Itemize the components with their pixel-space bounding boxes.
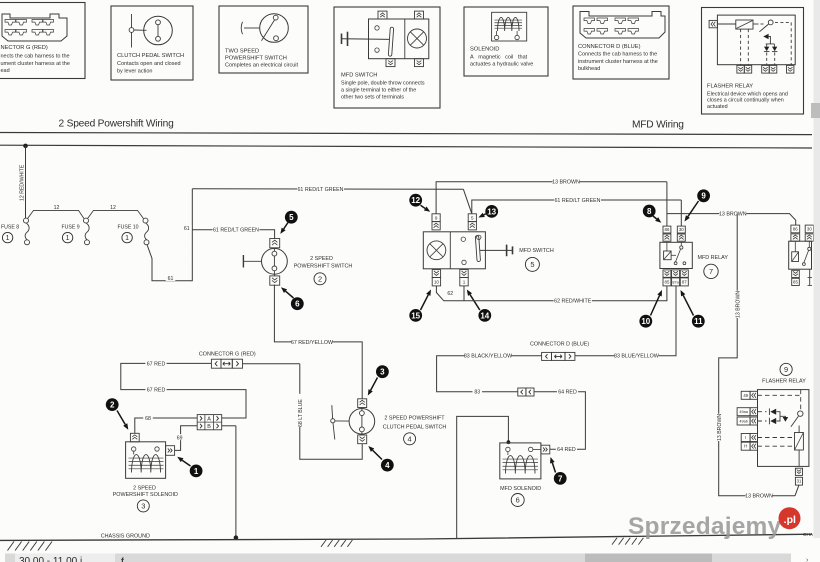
svg-text:instrument cluster harness at: instrument cluster harness at the — [578, 59, 658, 65]
svg-text:13 BROWN: 13 BROWN — [745, 494, 773, 500]
svg-text:CONNECTOR D (BLUE): CONNECTOR D (BLUE) — [530, 342, 589, 348]
svg-text:2: 2 — [110, 401, 115, 410]
svg-text:9: 9 — [701, 192, 706, 201]
svg-text:POWERSHIFT SWITCH: POWERSHIFT SWITCH — [225, 56, 287, 62]
svg-text:FLASHER RELAY: FLASHER RELAY — [707, 83, 753, 89]
svg-text:49: 49 — [743, 393, 748, 398]
svg-text:12 RED/WHITE: 12 RED/WHITE — [20, 164, 26, 201]
svg-text:SOLENOID: SOLENOID — [470, 46, 499, 52]
svg-text:1: 1 — [125, 235, 129, 242]
svg-text:POWERSHIFT SOLENOID: POWERSHIFT SOLENOID — [113, 492, 178, 498]
svg-text:1: 1 — [66, 235, 70, 242]
svg-text:49aa: 49aa — [739, 410, 748, 414]
svg-text:2 SPEED: 2 SPEED — [310, 256, 333, 262]
svg-text:13: 13 — [487, 207, 496, 216]
svg-text:87a: 87a — [672, 280, 679, 284]
svg-text:CHASSIS GROUND: CHASSIS GROUND — [101, 533, 150, 539]
svg-text:6: 6 — [295, 300, 300, 309]
svg-text:CONNECTOR D (BLUE): CONNECTOR D (BLUE) — [578, 44, 641, 50]
svg-text:83 BLUE/YELLOW: 83 BLUE/YELLOW — [614, 354, 659, 360]
svg-text:67 RED/YELLOW: 67 RED/YELLOW — [291, 340, 333, 346]
svg-text:49ab: 49ab — [739, 419, 747, 423]
svg-text:2 SPEED: 2 SPEED — [133, 485, 156, 491]
svg-text:Electrical device which opens: Electrical device which opens and — [707, 91, 788, 97]
svg-text:CLUTCH PEDAL SWITCH: CLUTCH PEDAL SWITCH — [117, 53, 184, 59]
svg-text:11: 11 — [694, 317, 703, 326]
svg-text:13 BROWN: 13 BROWN — [552, 180, 580, 186]
svg-text:A magnetic coil that: A magnetic coil that — [470, 54, 528, 60]
svg-text:64 RED: 64 RED — [558, 390, 577, 396]
svg-text:MFD RELAY: MFD RELAY — [697, 255, 728, 261]
svg-text:CONNECTOR G (RED): CONNECTOR G (RED) — [199, 351, 256, 357]
svg-text:9: 9 — [784, 365, 788, 374]
svg-text:61 RED/LT GREEN: 61 RED/LT GREEN — [297, 187, 343, 193]
svg-text:H: H — [744, 444, 747, 449]
svg-text:NECTOR G (RED): NECTOR G (RED) — [1, 45, 48, 51]
svg-text:Single pole, double throw conn: Single pole, double throw connects — [341, 81, 425, 87]
svg-text:6: 6 — [516, 496, 520, 505]
svg-text:7: 7 — [709, 267, 713, 276]
svg-text:5: 5 — [471, 215, 474, 220]
svg-text:1: 1 — [194, 467, 199, 476]
svg-text:86: 86 — [665, 227, 670, 232]
svg-text:FUSE 8: FUSE 8 — [1, 224, 19, 230]
svg-text:30.00 - 11.00 i: 30.00 - 11.00 i — [19, 556, 82, 562]
svg-text:86: 86 — [793, 227, 798, 232]
svg-text:9: 9 — [435, 215, 438, 220]
svg-text:67 RED: 67 RED — [147, 388, 166, 394]
svg-text:MFD SOLENOID: MFD SOLENOID — [500, 486, 541, 492]
svg-text:2 SPEED POWERSHIFT: 2 SPEED POWERSHIFT — [384, 415, 445, 421]
svg-text:15: 15 — [411, 311, 420, 320]
svg-text:12: 12 — [54, 205, 60, 211]
svg-text:5: 5 — [530, 260, 534, 269]
svg-text:B: B — [207, 424, 211, 430]
svg-text:83: 83 — [474, 390, 480, 396]
svg-text:I: I — [745, 435, 746, 440]
svg-text:a single terminal to either of: a single terminal to either of the — [341, 88, 416, 94]
svg-text:85: 85 — [793, 279, 798, 284]
svg-text:30: 30 — [807, 227, 812, 232]
svg-text:MFD SWITCH: MFD SWITCH — [341, 72, 377, 78]
svg-text:14: 14 — [480, 311, 489, 320]
svg-text:actuated: actuated — [707, 104, 728, 110]
svg-text:Contacts open and closed: Contacts open and closed — [117, 61, 181, 67]
svg-text:TWO SPEED: TWO SPEED — [225, 49, 259, 55]
svg-text:.pl: .pl — [784, 514, 796, 526]
svg-text:nects the cab harness to the: nects the cab harness to the — [1, 54, 70, 60]
svg-text:61: 61 — [184, 226, 190, 232]
svg-text:10: 10 — [434, 279, 440, 284]
svg-text:83 BLACK/YELLOW: 83 BLACK/YELLOW — [464, 354, 512, 360]
svg-text:3: 3 — [141, 502, 145, 511]
svg-text:62 RED/WHITE: 62 RED/WHITE — [554, 299, 592, 305]
svg-text:67 RED: 67 RED — [147, 361, 166, 367]
svg-text:69: 69 — [177, 435, 183, 441]
svg-text:13 BROWN: 13 BROWN — [719, 212, 747, 218]
svg-text:by lever action: by lever action — [117, 68, 152, 74]
svg-text:31: 31 — [797, 479, 802, 484]
svg-text:ead: ead — [1, 68, 10, 74]
svg-text:CHA: CHA — [803, 532, 814, 538]
svg-text:f: f — [121, 556, 124, 562]
svg-text:3: 3 — [380, 368, 385, 377]
svg-text:A: A — [207, 417, 211, 423]
svg-text:61: 61 — [168, 276, 174, 282]
svg-text:POWERSHIFT SWITCH: POWERSHIFT SWITCH — [294, 263, 353, 269]
svg-text:Connects the cab harness to th: Connects the cab harness to the — [578, 52, 657, 58]
svg-text:8: 8 — [647, 207, 652, 216]
svg-text:13 BROWN: 13 BROWN — [736, 291, 742, 318]
svg-text:FLASHER RELAY: FLASHER RELAY — [762, 379, 806, 385]
svg-text:4: 4 — [385, 461, 390, 470]
svg-text:actuates a hydraulic valve: actuates a hydraulic valve — [470, 62, 533, 68]
svg-text:2 Speed Powershift Wiring: 2 Speed Powershift Wiring — [59, 118, 175, 129]
svg-text:FUSE 9: FUSE 9 — [62, 224, 80, 230]
svg-text:other two sets of terminals: other two sets of terminals — [341, 95, 404, 101]
svg-text:61 RED/LT GREEN: 61 RED/LT GREEN — [554, 198, 600, 204]
svg-text:FUSE 10: FUSE 10 — [118, 224, 139, 230]
svg-text:1: 1 — [463, 279, 466, 284]
svg-text:2: 2 — [318, 274, 322, 283]
svg-text:64 RED: 64 RED — [557, 447, 576, 453]
svg-text:61 RED/LT GREEN: 61 RED/LT GREEN — [213, 228, 259, 234]
svg-text:12: 12 — [411, 196, 420, 205]
svg-text:4: 4 — [408, 434, 412, 443]
svg-text:13 BROWN: 13 BROWN — [717, 414, 723, 441]
svg-text:Completes an electrical circui: Completes an electrical circuit — [225, 63, 299, 69]
svg-text:85: 85 — [665, 279, 670, 284]
svg-text:ument cluster harness at the: ument cluster harness at the — [1, 61, 70, 67]
svg-text:68: 68 — [145, 416, 151, 422]
svg-text:CLUTCH PEDAL SWITCH: CLUTCH PEDAL SWITCH — [383, 424, 447, 430]
svg-text:12: 12 — [110, 205, 116, 211]
svg-text:7: 7 — [558, 474, 563, 483]
svg-text:Sprzedajemy: Sprzedajemy — [628, 513, 782, 540]
svg-text:1: 1 — [6, 235, 10, 242]
svg-text:5: 5 — [289, 213, 294, 222]
svg-text:30: 30 — [679, 227, 684, 232]
svg-text:87: 87 — [682, 279, 687, 284]
svg-text:closes a circuit continually w: closes a circuit continually when — [707, 98, 784, 104]
svg-text:62: 62 — [447, 291, 453, 297]
svg-text:bulkhead: bulkhead — [578, 66, 600, 72]
svg-text:MFD Wiring: MFD Wiring — [632, 120, 684, 131]
svg-text:10: 10 — [641, 317, 650, 326]
svg-text:68 LT BLUE: 68 LT BLUE — [298, 399, 304, 427]
svg-text:MFD SWITCH: MFD SWITCH — [519, 248, 554, 254]
